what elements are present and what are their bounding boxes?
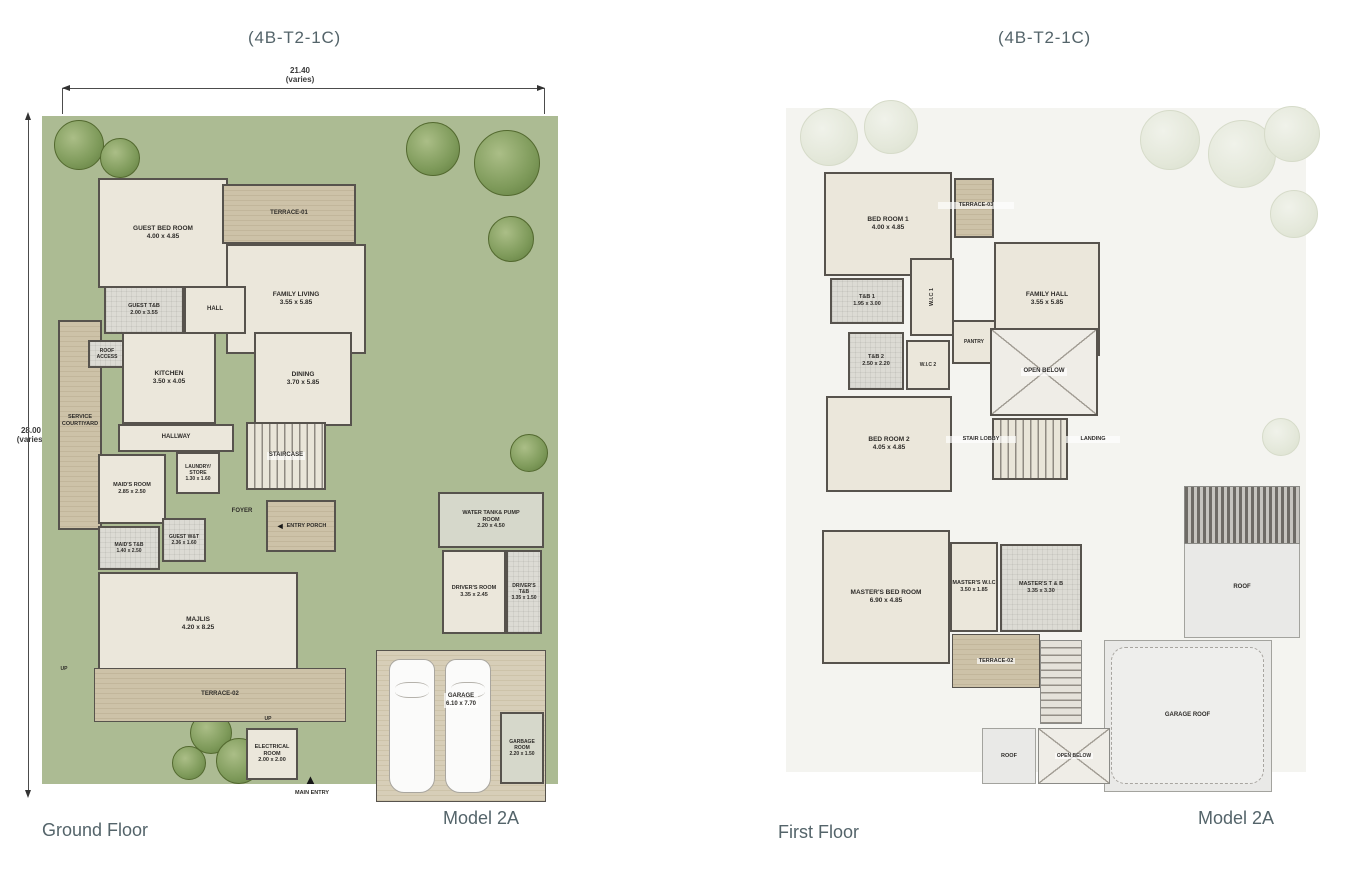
entry-porch-arrow-icon: ◄ [276, 521, 285, 531]
room-label: DRIVER'S ROOM3.35 x 2.45 [452, 585, 496, 599]
gf-maids-tb: MAID'S T&B1.40 x 2.50 [98, 526, 160, 570]
ff-bed-room-2: BED ROOM 24.05 x 4.85 [826, 396, 952, 492]
gf-drivers-tb: DRIVER'S T&B3.35 x 1.50 [506, 550, 542, 634]
gf-up-label: UP [260, 716, 276, 722]
car [445, 659, 491, 793]
room-label: WATER TANK& PUMP ROOM2.20 x 4.50 [456, 510, 526, 531]
ff-tb-1: T&B 11.95 x 3.00 [830, 278, 904, 324]
room-label: MAID'S ROOM2.85 x 2.50 [113, 482, 151, 496]
gf-water-tank-pump-room: WATER TANK& PUMP ROOM2.20 x 4.50 [438, 492, 544, 548]
room-label: T&B 22.50 x 2.20 [862, 354, 890, 368]
ff-wic-2: W.I.C 2 [906, 340, 950, 390]
room-label: W.I.C 1 [929, 288, 936, 306]
gf-terrace-02: TERRACE-02 [94, 668, 346, 722]
gf-foyer-label: FOYER [210, 508, 274, 515]
room-label: ELECTRICAL ROOM2.00 x 2.00 [248, 744, 296, 765]
room-label: GARBAGE ROOM2.20 x 1.50 [502, 739, 542, 758]
gf-guest-tb: GUEST T&B2.00 x 3.55 [104, 286, 184, 334]
main-entry-arrow-icon: ▲ [304, 772, 317, 787]
side-dimension-note: (varies) [17, 435, 45, 444]
gf-maids-room: MAID'S ROOM2.85 x 2.50 [98, 454, 166, 524]
gf-majlis: MAJLIS4.20 x 8.25 [98, 572, 298, 676]
left-model-caption: Model 2A [443, 808, 519, 829]
gf-garbage-room: GARBAGE ROOM2.20 x 1.50 [500, 712, 544, 784]
ff-open-below: OPEN BELOW [990, 328, 1098, 416]
room-label: FAMILY LIVING3.55 x 5.85 [273, 291, 320, 307]
ff-stairs [992, 418, 1068, 480]
left-plan-title: (4B-T2-1C) [248, 28, 341, 48]
gf-laundry-store: LAUNDRY/ STORE1.30 x 1.60 [176, 452, 220, 494]
gf-guest-bed-room: GUEST BED ROOM4.00 x 4.85 [98, 178, 228, 288]
room-label: ROOF [1233, 584, 1250, 592]
room-label: GUEST T&B2.00 x 3.55 [128, 303, 160, 317]
tree [100, 138, 140, 178]
ff-terrace-02: TERRACE-02 [952, 634, 1040, 688]
room-label: ROOF ACCESS [90, 348, 124, 361]
room-label: MAJLIS4.20 x 8.25 [182, 616, 215, 632]
garage-roof-canopy: GARAGE ROOF [1111, 647, 1264, 784]
room-label: STAIRCASE [267, 452, 305, 460]
ff-tb-2: T&B 22.50 x 2.20 [848, 332, 904, 390]
ground-floor-caption: Ground Floor [42, 820, 148, 841]
room-label: GUEST BED ROOM4.00 x 4.85 [133, 225, 193, 241]
top-dimension-value: 21.40 [290, 66, 310, 75]
ff-roof-small: ROOF [982, 728, 1036, 784]
room-label: MASTER'S T & B3.35 x 3.30 [1019, 581, 1063, 595]
ff-masters-bed-room: MASTER'S BED ROOM6.90 x 4.85 [822, 530, 950, 664]
ff-wic-1: W.I.C 1 [910, 258, 954, 336]
faded-tree [1140, 110, 1200, 170]
gf-up-label: UP [56, 666, 72, 672]
car [389, 659, 435, 793]
gf-terrace-01: TERRACE-01 [222, 184, 356, 244]
room-label: DRIVER'S T&B3.35 x 1.50 [508, 583, 540, 602]
dim-arrow-up-icon [25, 112, 31, 120]
ff-stair-lobby-label: STAIR LOBBY [946, 436, 1016, 443]
room-label: HALL [207, 306, 223, 314]
room-label: OPEN BELOW [1055, 753, 1093, 759]
faded-tree [1262, 418, 1300, 456]
room-label: GARAGE6.10 x 7.70 [444, 693, 478, 708]
room-label: GUEST W&T2.36 x 1.60 [169, 534, 199, 547]
first-floor-plan: BED ROOM 14.00 x 4.85 TERRACE-03 FAMILY … [772, 100, 1320, 800]
tree [406, 122, 460, 176]
tree [474, 130, 540, 196]
ff-terrace-03-label: TERRACE-03 [938, 202, 1014, 209]
tree [510, 434, 548, 472]
gf-drivers-room: DRIVER'S ROOM3.35 x 2.45 [442, 550, 506, 634]
tree [172, 746, 206, 780]
ff-stairs-down [1040, 640, 1082, 724]
faded-tree [1264, 106, 1320, 162]
faded-tree [1270, 190, 1318, 238]
tree [54, 120, 104, 170]
ff-open-below-2: OPEN BELOW [1038, 728, 1110, 784]
ff-masters-tb: MASTER'S T & B3.35 x 3.30 [1000, 544, 1082, 632]
room-label: PANTRY [964, 339, 984, 345]
room-label: FAMILY HALL3.55 x 5.85 [1026, 291, 1068, 307]
ff-garage-roof: GARAGE ROOF [1104, 640, 1272, 792]
room-label: MASTER'S W.I.C3.50 x 1.85 [952, 580, 995, 594]
gf-kitchen: KITCHEN3.50 x 4.05 [122, 332, 216, 424]
room-label: OPEN BELOW [1021, 368, 1066, 376]
right-plan-title: (4B-T2-1C) [998, 28, 1091, 48]
room-label: W.I.C 2 [920, 362, 936, 368]
room-label: GARAGE ROOF [1165, 712, 1210, 720]
gf-main-entry-label: MAIN ENTRY [286, 790, 338, 797]
gf-dining: DINING3.70 x 5.85 [254, 332, 352, 426]
room-label: MASTER'S BED ROOM6.90 x 4.85 [851, 589, 922, 605]
gf-hallway: HALLWAY [118, 424, 234, 452]
gf-staircase: STAIRCASE [246, 422, 326, 490]
first-floor-caption: First Floor [778, 822, 859, 843]
top-dimension-note: (varies) [286, 75, 314, 84]
gf-hall: HALL [184, 286, 246, 334]
tree [488, 216, 534, 262]
room-label: BED ROOM 14.00 x 4.85 [867, 216, 908, 232]
ground-floor-plan: SERVICE COURTIYARD GUEST BED ROOM4.00 x … [42, 110, 560, 810]
room-label: TERRACE-01 [270, 210, 308, 218]
room-label: LAUNDRY/ STORE1.30 x 1.60 [178, 464, 218, 483]
top-dimension-label: 21.40 (varies) [262, 66, 338, 84]
room-label: T&B 11.95 x 3.00 [853, 294, 881, 308]
dim-arrow-left-icon [62, 85, 70, 91]
faded-tree [864, 100, 918, 154]
pergola [1184, 486, 1300, 544]
room-label: MAID'S T&B1.40 x 2.50 [115, 542, 144, 555]
gf-roof-access: ROOF ACCESS [88, 340, 126, 368]
dim-arrow-down-icon [25, 790, 31, 798]
room-label: TERRACE-02 [977, 658, 1016, 665]
room-label: KITCHEN3.50 x 4.05 [153, 370, 186, 386]
side-dimension-line [28, 118, 29, 792]
gf-entry-porch: ◄ ENTRY PORCH [266, 500, 336, 552]
room-label: TERRACE-02 [201, 691, 239, 699]
ff-landing-label: LANDING [1066, 436, 1120, 443]
room-label: ROOF [1001, 753, 1017, 760]
room-label: BED ROOM 24.05 x 4.85 [868, 436, 909, 452]
faded-tree [800, 108, 858, 166]
side-dimension-value: 28.00 [21, 426, 41, 435]
top-dimension-line [62, 88, 545, 89]
ff-masters-wic: MASTER'S W.I.C3.50 x 1.85 [950, 542, 998, 632]
right-model-caption: Model 2A [1198, 808, 1274, 829]
ff-roof-right: ROOF [1184, 486, 1300, 638]
room-label: DINING3.70 x 5.85 [287, 371, 320, 387]
room-label: ENTRY PORCH [287, 523, 327, 530]
room-label: HALLWAY [162, 434, 191, 442]
gf-electrical-room: ELECTRICAL ROOM2.00 x 2.00 [246, 728, 298, 780]
room-label: SERVICE COURTIYARD [60, 414, 100, 428]
gf-guest-wt: GUEST W&T2.36 x 1.60 [162, 518, 206, 562]
